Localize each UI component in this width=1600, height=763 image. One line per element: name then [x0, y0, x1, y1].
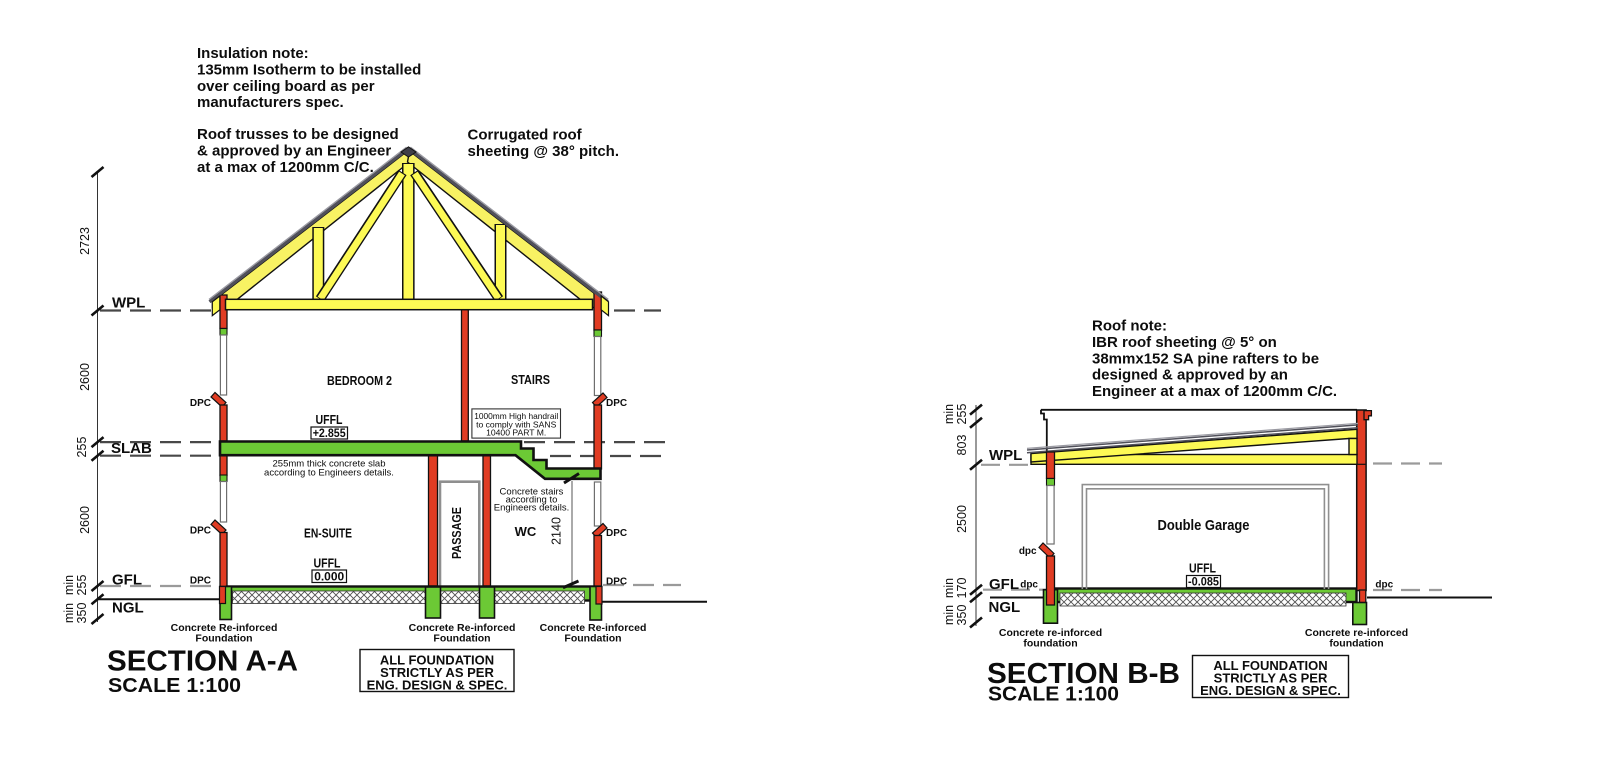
- svg-text:manufacturers spec.: manufacturers spec.: [197, 94, 344, 111]
- svg-text:2500: 2500: [955, 505, 969, 533]
- svg-text:Corrugated roof: Corrugated roof: [468, 126, 583, 143]
- svg-text:Foundation: Foundation: [433, 633, 490, 645]
- svg-text:STAIRS: STAIRS: [511, 372, 550, 387]
- svg-text:PASSAGE: PASSAGE: [449, 507, 464, 559]
- svg-text:Roof note:: Roof note:: [1092, 318, 1167, 335]
- svg-text:2600: 2600: [78, 506, 92, 534]
- svg-text:+2.855: +2.855: [313, 426, 346, 440]
- svg-text:10400 PART M.: 10400 PART M.: [486, 428, 546, 438]
- svg-text:& approved by an Engineer: & approved by an Engineer: [197, 142, 391, 159]
- svg-text:NGL: NGL: [989, 599, 1021, 616]
- svg-text:foundation: foundation: [1023, 638, 1077, 650]
- svg-text:Roof trusses to be designed: Roof trusses to be designed: [197, 126, 399, 143]
- svg-text:min: min: [62, 575, 76, 595]
- svg-text:Engineers details.: Engineers details.: [494, 503, 570, 514]
- svg-text:min: min: [62, 603, 76, 623]
- svg-text:sheeting @ 38° pitch.: sheeting @ 38° pitch.: [468, 143, 620, 160]
- svg-text:DPC: DPC: [190, 576, 211, 587]
- svg-text:SCALE 1:100: SCALE 1:100: [108, 675, 241, 697]
- svg-text:2723: 2723: [78, 227, 92, 255]
- svg-text:350: 350: [75, 603, 89, 624]
- svg-text:Engineer at a max of 1200mm C/: Engineer at a max of 1200mm C/C.: [1092, 383, 1337, 400]
- svg-text:2600: 2600: [78, 363, 92, 391]
- svg-text:DPC: DPC: [606, 398, 627, 409]
- svg-text:dpc: dpc: [1375, 580, 1393, 591]
- svg-text:designed & approved by an: designed & approved by an: [1092, 367, 1288, 384]
- svg-text:GFL: GFL: [112, 572, 142, 589]
- svg-text:Insulation note:: Insulation note:: [197, 45, 309, 62]
- svg-text:at a max of 1200mm C/C.: at a max of 1200mm C/C.: [197, 159, 374, 176]
- svg-text:DPC: DPC: [190, 526, 211, 537]
- svg-text:Double Garage: Double Garage: [1158, 517, 1250, 534]
- svg-text:0.000: 0.000: [314, 569, 344, 583]
- svg-text:2140: 2140: [550, 517, 564, 545]
- svg-text:255: 255: [75, 437, 89, 458]
- svg-text:ENG. DESIGN & SPEC.: ENG. DESIGN & SPEC.: [1200, 683, 1341, 698]
- svg-text:Foundation: Foundation: [195, 633, 252, 645]
- svg-text:WPL: WPL: [989, 447, 1022, 464]
- svg-text:NGL: NGL: [112, 600, 144, 617]
- svg-text:255: 255: [75, 575, 89, 596]
- svg-text:WPL: WPL: [112, 295, 145, 312]
- svg-text:over ceiling board as per: over ceiling board as per: [197, 78, 375, 95]
- svg-text:DPC: DPC: [606, 577, 627, 588]
- svg-text:foundation: foundation: [1329, 638, 1383, 650]
- svg-text:WC: WC: [515, 524, 537, 539]
- svg-text:ENG. DESIGN & SPEC.: ENG. DESIGN & SPEC.: [367, 677, 508, 692]
- svg-text:SCALE 1:100: SCALE 1:100: [988, 684, 1119, 706]
- svg-text:dpc: dpc: [1020, 580, 1038, 591]
- svg-text:UFFL: UFFL: [316, 412, 343, 427]
- svg-text:Foundation: Foundation: [564, 633, 621, 645]
- svg-text:UFFL: UFFL: [1189, 561, 1216, 576]
- svg-text:EN-SUITE: EN-SUITE: [304, 526, 352, 541]
- svg-text:IBR roof sheeting @ 5° on: IBR roof sheeting @ 5° on: [1092, 334, 1277, 351]
- svg-text:170: 170: [955, 578, 969, 599]
- svg-text:255: 255: [955, 404, 969, 425]
- svg-text:350: 350: [955, 605, 969, 626]
- svg-text:DPC: DPC: [190, 398, 211, 409]
- svg-text:135mm Isotherm to be installed: 135mm Isotherm to be installed: [197, 61, 421, 78]
- svg-text:dpc: dpc: [1019, 546, 1037, 557]
- svg-text:DPC: DPC: [606, 528, 627, 539]
- svg-text:SLAB: SLAB: [111, 440, 152, 457]
- svg-text:803: 803: [955, 435, 969, 456]
- svg-text:min: min: [942, 578, 956, 598]
- svg-text:38mmx152 SA pine rafters to be: 38mmx152 SA pine rafters to be: [1092, 350, 1319, 367]
- svg-text:UFFL: UFFL: [314, 556, 341, 571]
- svg-text:min: min: [942, 404, 956, 424]
- svg-text:min: min: [942, 605, 956, 625]
- svg-text:-0.085: -0.085: [1188, 574, 1219, 588]
- svg-text:GFL: GFL: [989, 576, 1019, 593]
- svg-text:SECTION A-A: SECTION A-A: [107, 646, 298, 678]
- svg-text:BEDROOM 2: BEDROOM 2: [327, 373, 392, 388]
- svg-text:according to Engineers details: according to Engineers details.: [264, 467, 394, 478]
